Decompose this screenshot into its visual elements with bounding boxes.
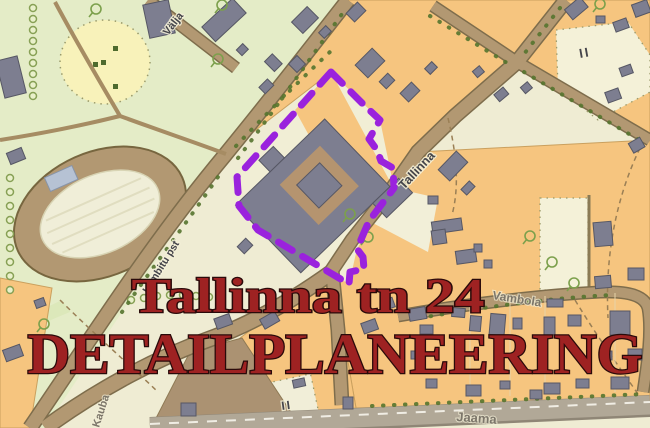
building xyxy=(428,196,438,204)
building xyxy=(484,260,492,268)
building xyxy=(343,397,353,409)
building xyxy=(474,244,482,252)
building xyxy=(628,268,644,280)
overlay-title-line1: Tallinna tn 24 xyxy=(132,268,485,323)
building xyxy=(466,385,481,396)
building xyxy=(547,299,563,307)
tree-row-left xyxy=(30,5,37,100)
label-roman-two-b: II xyxy=(280,398,293,413)
building xyxy=(431,229,447,245)
overlay-title-line2: DETAILPLANEERING xyxy=(28,323,643,386)
parcel-right-mid xyxy=(540,198,588,290)
building xyxy=(530,390,542,399)
map-canvas: Välja Tallinna Lembitu pst Vambola Jaama… xyxy=(0,0,650,428)
map-screenshot: Välja Tallinna Lembitu pst Vambola Jaama… xyxy=(0,0,650,428)
building xyxy=(593,221,613,246)
label-jaama: Jaama xyxy=(456,409,498,427)
building xyxy=(596,16,605,23)
building xyxy=(595,275,612,288)
tree-row-edge xyxy=(7,175,14,294)
building xyxy=(181,403,196,416)
